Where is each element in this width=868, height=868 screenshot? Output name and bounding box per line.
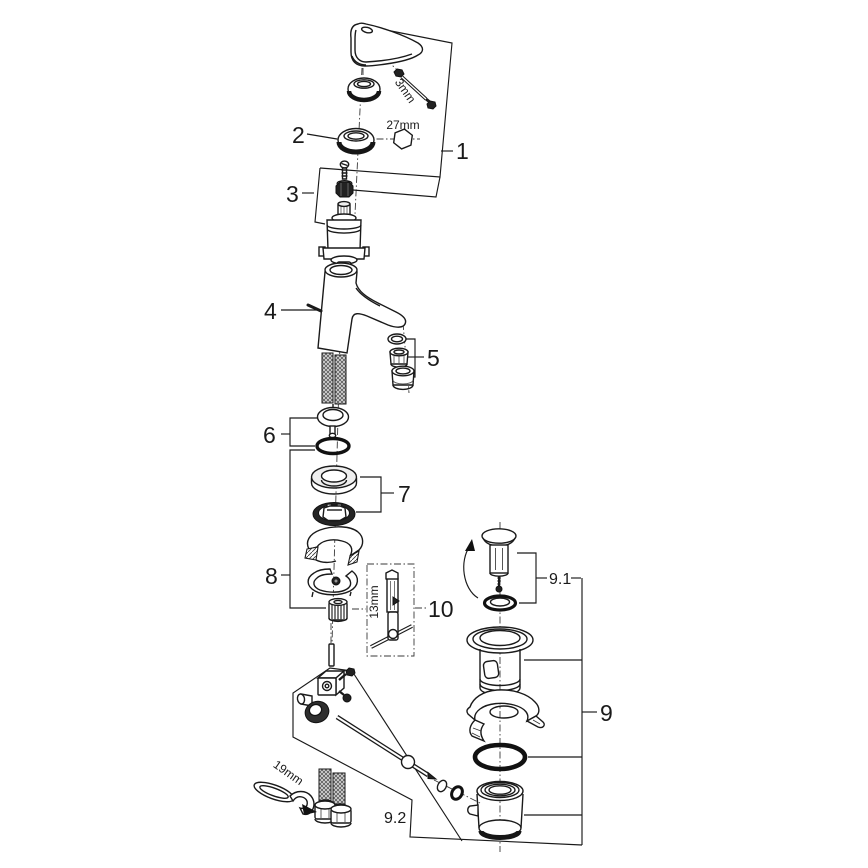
- hose-nuts: [315, 801, 351, 827]
- mounting-nut: [329, 599, 347, 622]
- dim-19mm-label: 19mm: [271, 757, 306, 788]
- pull-rod-pin: [329, 644, 334, 666]
- rod-seal-ring: [449, 785, 464, 801]
- base-washer: [318, 408, 349, 438]
- callout-10-label: 10: [428, 596, 454, 622]
- dim-3mm-label: 3mm: [392, 76, 419, 106]
- callout-5-label: 5: [427, 345, 440, 371]
- mounting-ring-metal: [312, 466, 357, 494]
- cap-ring: [338, 129, 374, 153]
- cartridge-nut: [336, 181, 353, 198]
- handle-lever: [351, 23, 423, 66]
- handle-dome-cap: [348, 78, 380, 100]
- callout-9-1-label: 9.1: [549, 571, 571, 588]
- saddle-gasket: [467, 690, 544, 741]
- callout-4-label: 4: [264, 298, 277, 324]
- callout-9-label: 9: [600, 700, 613, 726]
- callout-2-label: 2: [292, 122, 305, 148]
- cartridge-screw: [340, 161, 348, 179]
- callout-8-label: 8: [265, 563, 278, 589]
- aerator-washer: [388, 334, 406, 344]
- linkage-screw-lower: [339, 691, 351, 702]
- wrench-19mm: [252, 778, 317, 815]
- supply-hoses: [322, 353, 346, 412]
- callout-7-label: 7: [398, 481, 411, 507]
- clamp-bracket: [308, 569, 357, 597]
- callout-1-label: 1: [456, 138, 469, 164]
- aerator-insert: [390, 348, 408, 367]
- dim-13mm-label: 13mm: [367, 585, 381, 618]
- callout-9-2-label: 9.2: [384, 810, 406, 827]
- callout-3-label: 3: [286, 181, 299, 207]
- dim-27mm-label: 27mm: [386, 118, 419, 132]
- cartridge: [319, 202, 369, 268]
- base-o-ring: [317, 439, 349, 454]
- drain-waste-body: [468, 782, 523, 838]
- aerator-housing: [392, 366, 414, 389]
- plug-seal: [485, 596, 516, 610]
- pull-rod: [337, 717, 436, 779]
- faucet-exploded-diagram: 1 2 3 4 5 6 7 8 9 9.1 9.2 10 27mm 3mm 13…: [0, 0, 868, 868]
- group-3-outline: [315, 168, 325, 224]
- drain-plug: [482, 529, 516, 592]
- diagram-canvas: 1 2 3 4 5 6 7 8 9 9.1 9.2 10 27mm 3mm 13…: [0, 0, 868, 868]
- bracket-7: [356, 477, 381, 512]
- bracket-6: [290, 418, 317, 446]
- mounting-ring-insert: [313, 503, 355, 526]
- rod-o-ring: [435, 779, 448, 794]
- rotation-arrow: [464, 539, 478, 598]
- callout-6-label: 6: [263, 422, 276, 448]
